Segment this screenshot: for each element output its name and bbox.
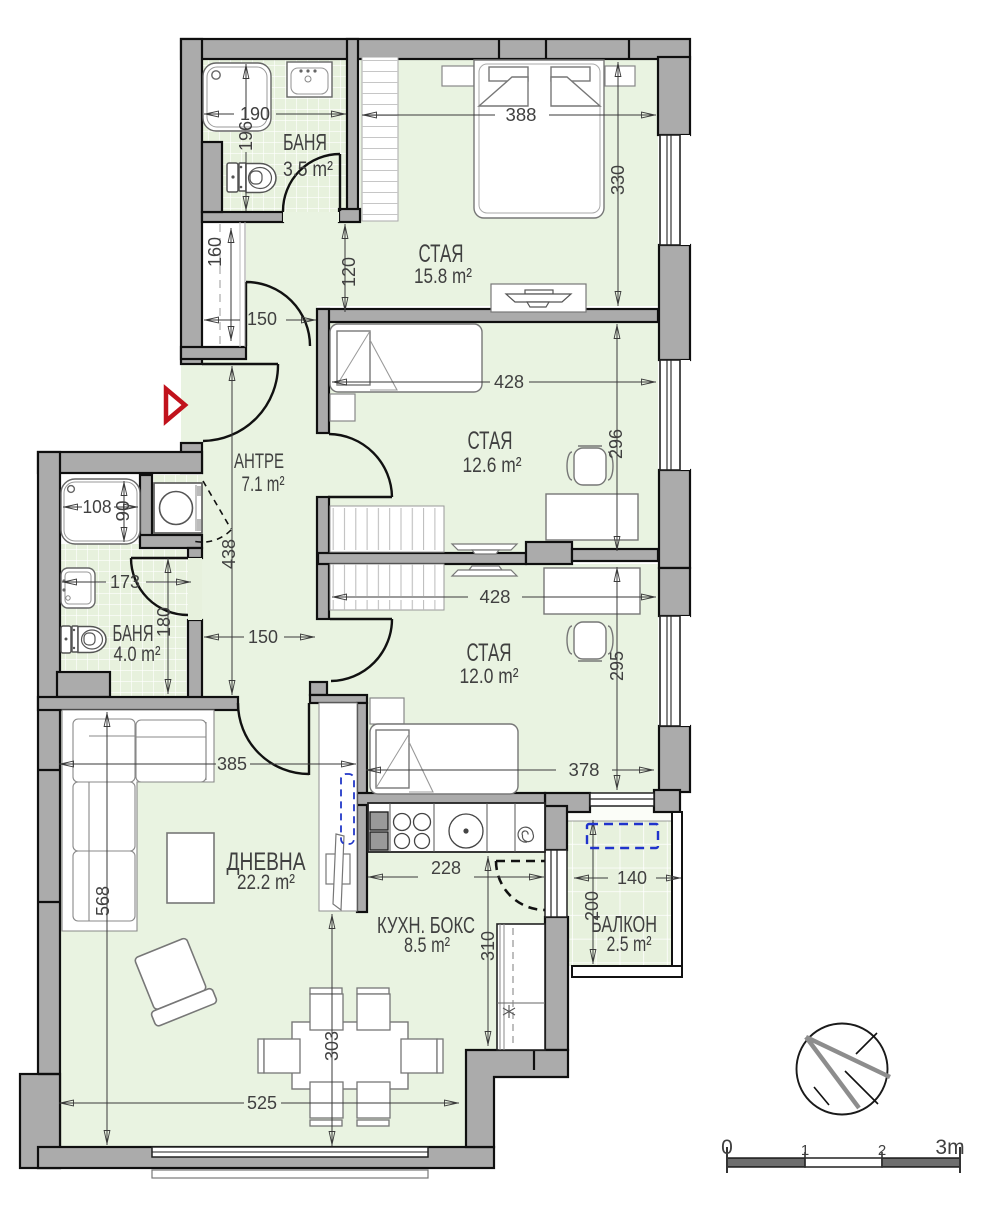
svg-text:150: 150: [248, 627, 278, 647]
svg-text:СТАЯ: СТАЯ: [419, 240, 464, 268]
svg-text:СТАЯ: СТАЯ: [467, 639, 512, 667]
svg-text:15.8 m²: 15.8 m²: [414, 265, 472, 288]
svg-text:22.2 m²: 22.2 m²: [237, 871, 295, 894]
svg-text:АНТРЕ: АНТРЕ: [234, 450, 284, 473]
svg-text:3.5 m²: 3.5 m²: [283, 158, 333, 181]
svg-text:568: 568: [93, 886, 113, 916]
svg-text:4.0 m²: 4.0 m²: [114, 643, 161, 666]
svg-text:7.1 m²: 7.1 m²: [242, 473, 285, 496]
svg-text:428: 428: [480, 587, 511, 607]
svg-text:12.6 m²: 12.6 m²: [463, 454, 522, 477]
svg-text:2: 2: [878, 1142, 886, 1159]
svg-text:438: 438: [219, 539, 239, 569]
svg-text:428: 428: [494, 372, 524, 392]
svg-text:2.5 m²: 2.5 m²: [607, 933, 652, 956]
svg-text:160: 160: [205, 237, 225, 267]
svg-text:295: 295: [607, 651, 627, 681]
svg-text:90: 90: [113, 501, 133, 522]
svg-text:296: 296: [606, 429, 626, 459]
svg-text:140: 140: [617, 868, 647, 888]
svg-text:120: 120: [339, 257, 359, 287]
svg-text:8.5 m²: 8.5 m²: [404, 934, 450, 957]
svg-text:173: 173: [110, 572, 140, 592]
svg-text:525: 525: [247, 1093, 277, 1113]
svg-text:310: 310: [478, 931, 498, 961]
svg-text:196: 196: [236, 121, 256, 151]
svg-text:303: 303: [322, 1031, 342, 1061]
svg-text:378: 378: [569, 760, 600, 780]
svg-text:1: 1: [801, 1142, 809, 1159]
svg-text:3m: 3m: [935, 1136, 964, 1159]
svg-text:СТАЯ: СТАЯ: [468, 427, 513, 455]
svg-text:108: 108: [83, 497, 112, 517]
svg-text:330: 330: [608, 165, 628, 195]
svg-text:190: 190: [240, 104, 270, 124]
svg-text:180: 180: [154, 607, 174, 637]
svg-text:БАНЯ: БАНЯ: [283, 129, 327, 155]
svg-text:385: 385: [217, 754, 247, 774]
svg-text:150: 150: [247, 309, 277, 329]
svg-text:388: 388: [506, 105, 537, 125]
svg-text:0: 0: [721, 1136, 733, 1159]
svg-text:228: 228: [431, 858, 461, 878]
svg-text:12.0 m²: 12.0 m²: [460, 665, 519, 688]
